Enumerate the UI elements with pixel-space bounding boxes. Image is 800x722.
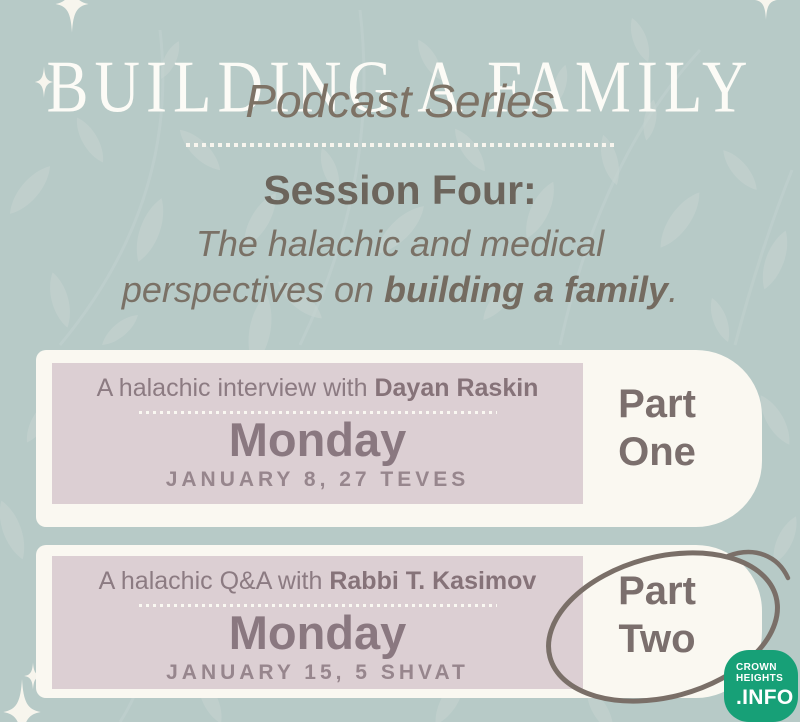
- session-description-line1: The halachic and medical: [196, 223, 604, 264]
- event-details-box: A halachic Q&A with Rabbi T. Kasimov Mon…: [52, 556, 583, 689]
- sparkle-icon: [755, 0, 777, 20]
- dotted-divider: [186, 143, 614, 147]
- session-description-period: .: [668, 269, 678, 310]
- session-description: The halachic and medical perspectives on…: [0, 221, 800, 313]
- crownheights-info-logo: CROWN HEIGHTS .INFO: [724, 650, 798, 722]
- logo-line-info: .INFO: [736, 687, 798, 708]
- session-card-part-two: A halachic Q&A with Rabbi T. Kasimov Mon…: [36, 545, 762, 698]
- logo-line-heights: HEIGHTS: [736, 674, 798, 685]
- session-description-bold: building a family: [384, 269, 668, 310]
- session-heading: Session Four:: [0, 167, 800, 214]
- event-intro: A halachic interview with Dayan Raskin: [52, 363, 583, 403]
- event-date: JANUARY 15, 5 SHVAT: [52, 661, 583, 685]
- event-date: JANUARY 8, 27 TEVES: [52, 468, 583, 492]
- speaker-name: Rabbi T. Kasimov: [329, 567, 536, 595]
- session-description-line2-prefix: perspectives on: [122, 269, 384, 310]
- part-label-line1: Part: [582, 567, 732, 615]
- part-label-line2: Two: [582, 615, 732, 663]
- poster-subtitle: Podcast Series: [0, 74, 800, 128]
- part-label-line2: One: [582, 428, 732, 476]
- logo-text: CROWN HEIGHTS .INFO: [724, 650, 798, 708]
- speaker-name: Dayan Raskin: [374, 374, 538, 402]
- event-intro-text: A halachic Q&A with: [99, 567, 330, 595]
- event-day: Monday: [52, 609, 583, 658]
- part-label-line1: Part: [582, 380, 732, 428]
- event-intro: A halachic Q&A with Rabbi T. Kasimov: [52, 556, 583, 596]
- event-day: Monday: [52, 416, 583, 465]
- part-label: Part One: [582, 380, 732, 476]
- event-details-box: A halachic interview with Dayan Raskin M…: [52, 363, 583, 504]
- part-label: Part Two: [582, 567, 732, 663]
- event-intro-text: A halachic interview with: [97, 374, 375, 402]
- session-card-part-one: A halachic interview with Dayan Raskin M…: [36, 350, 762, 527]
- podcast-poster: BUILDING A FAMILY Podcast Series Session…: [0, 0, 800, 722]
- sparkle-icon: [56, 0, 89, 33]
